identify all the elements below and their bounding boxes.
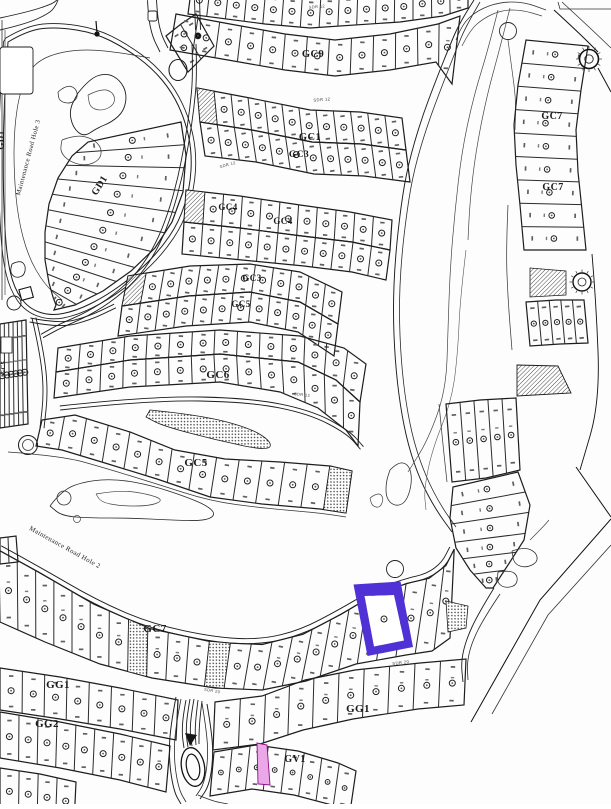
svg-text:GC3: GC3: [242, 273, 261, 283]
svg-text:GC9: GC9: [302, 49, 324, 60]
svg-text:GC5: GC5: [231, 299, 250, 309]
svg-text:GC1: GC1: [299, 132, 321, 143]
svg-text:GC6: GC6: [206, 369, 229, 381]
svg-text:GG2: GG2: [35, 718, 59, 730]
svg-text:GC4: GC4: [218, 202, 237, 212]
svg-text:GG1: GG1: [46, 679, 70, 691]
svg-text:GC3: GC3: [289, 150, 309, 160]
svg-text:GC7: GC7: [143, 623, 166, 635]
svg-text:GG1: GG1: [346, 703, 370, 715]
svg-text:GC4: GC4: [273, 216, 292, 226]
svg-text:GC5: GC5: [184, 457, 207, 469]
svg-text:GC5: GC5: [0, 361, 7, 376]
svg-text:GV1: GV1: [284, 754, 305, 765]
svg-text:GC7: GC7: [542, 182, 563, 193]
svg-text:GC7: GC7: [541, 111, 562, 122]
